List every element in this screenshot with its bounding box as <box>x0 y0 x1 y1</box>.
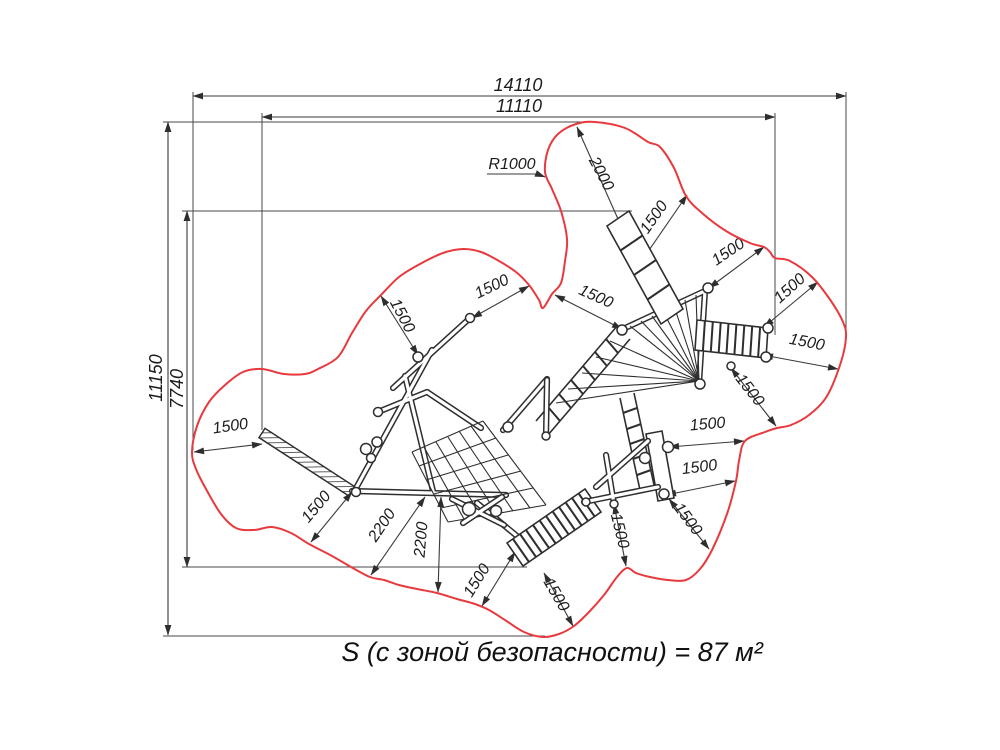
clearance-line-10 <box>666 481 735 495</box>
clearance-label-13: 1500 <box>540 575 573 614</box>
clearance-label-12: 1500 <box>607 512 632 551</box>
dim-equipment-width: 11110 <box>496 96 542 116</box>
clearance-label-6: 1500 <box>771 270 809 307</box>
clearance-label-9: 1500 <box>689 414 726 434</box>
clearance-label-5: 1500 <box>637 198 671 237</box>
slide-runout-dim: 2000 <box>585 153 617 193</box>
left-tower <box>352 318 547 541</box>
clearance-line-9 <box>669 441 744 447</box>
swing-knob-2 <box>491 506 502 517</box>
drawing-svg: 14110 11110 11150 7740 R1000 2000 1500 1… <box>0 0 1000 750</box>
clearance-2200-label-0: 2200 <box>365 506 400 546</box>
clearance-2200-label-1: 2200 <box>411 521 431 559</box>
area-caption: S (с зоной безопасности) = 87 м² <box>341 637 763 667</box>
clearance-line-7 <box>763 355 838 369</box>
dim-overall-width: 14110 <box>494 75 543 95</box>
swing-knob <box>463 503 476 516</box>
site-plan-drawing: 14110 11110 11150 7740 R1000 2000 1500 1… <box>0 0 1000 750</box>
clearance-label-2: 1500 <box>472 271 512 302</box>
horizontal-ladder <box>695 320 768 358</box>
clearance-2200-line-1 <box>438 497 441 592</box>
clearance-label-10: 1500 <box>681 457 719 478</box>
clearance-label-11: 1500 <box>670 500 705 539</box>
radius-callout: R1000 <box>488 156 535 173</box>
dim-overall-height: 11150 <box>146 354 166 401</box>
clearance-label-7: 1500 <box>788 331 826 354</box>
clearance-label-1: 1500 <box>386 296 418 335</box>
radius-leader <box>487 174 545 177</box>
dim-equipment-height: 7740 <box>167 369 187 409</box>
clearance-line-0 <box>194 444 262 452</box>
equipment-drawing <box>259 211 773 566</box>
clearance-label-8: 1500 <box>732 371 767 410</box>
balance-beam <box>259 428 355 496</box>
clearance-label-0: 1500 <box>212 416 250 438</box>
clearance-label-3: 1500 <box>576 282 616 312</box>
